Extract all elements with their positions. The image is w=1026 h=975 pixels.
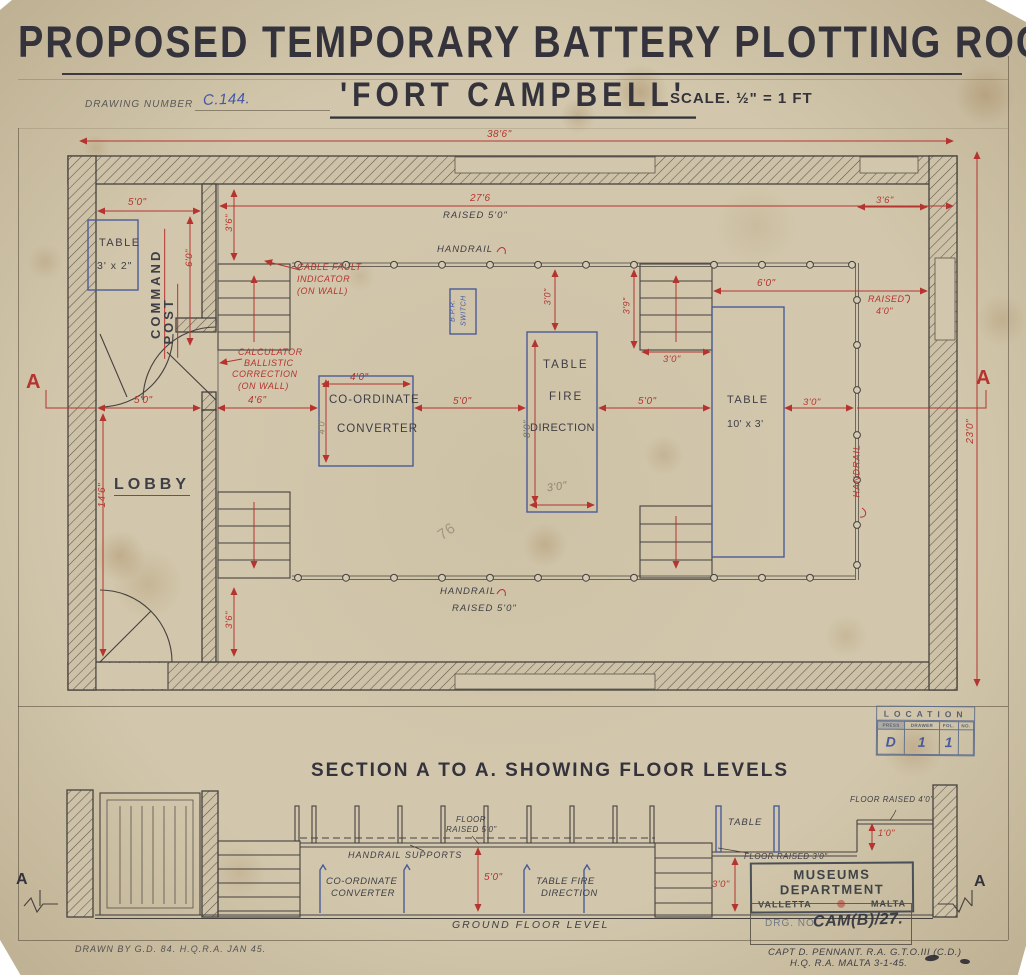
fire-table-label-2: FIRE bbox=[549, 391, 583, 403]
location-stamp-table: PRESS DRAWER FOL. NO. D 1 1 bbox=[877, 721, 974, 756]
dim-4-6-lobby: 4'6" bbox=[248, 396, 267, 407]
section-title: SECTION A TO A. SHOWING FLOOR LEVELS bbox=[285, 761, 815, 781]
section-dim-1-0: 1'0" bbox=[878, 829, 895, 838]
section-dim-3-0: 3'0" bbox=[712, 880, 730, 890]
converter-label-1: CO-ORDINATE bbox=[329, 394, 420, 406]
cp-table-label-1: TABLE bbox=[99, 238, 141, 250]
handrail-bottom-label: HANDRAIL bbox=[440, 587, 496, 597]
handrail-supports-label: HANDRAIL SUPPORTS bbox=[348, 851, 462, 860]
handrail-top-label: HANDRAIL bbox=[437, 245, 493, 255]
dim-6-0-right: 6'0" bbox=[757, 279, 776, 290]
floor-raised-5-0-label-1: FLOOR bbox=[456, 816, 486, 824]
section-marker-a-right: A bbox=[976, 368, 991, 389]
dim-5-0-a: 5'0" bbox=[453, 397, 472, 408]
location-val-fol: 1 bbox=[939, 730, 958, 755]
lobby-label: LOBBY bbox=[114, 477, 190, 496]
section-marker-a-left: A bbox=[26, 372, 41, 393]
dim-5-0-lobby: 5'0" bbox=[134, 396, 153, 407]
drg-number-label: DRG. NO' bbox=[765, 919, 818, 930]
dim-3-6-right: 3'6" bbox=[876, 196, 894, 206]
calculator-line-1: CALCULATOR bbox=[238, 348, 303, 357]
dim-14-6: 14'6" bbox=[98, 468, 109, 522]
section-fire-label-2: DIRECTION bbox=[541, 889, 598, 899]
dim-3-6-left: 3'6" bbox=[225, 203, 235, 243]
bpr-switch-label-1: B.P.R. bbox=[449, 281, 456, 341]
dim-3-6-bottom: 3'6" bbox=[225, 600, 235, 640]
calculator-line-3: CORRECTION bbox=[232, 370, 298, 379]
fire-table-label-1: TABLE bbox=[543, 359, 589, 371]
floor-raised-5-0-label-2: RAISED 5'0" bbox=[446, 826, 497, 834]
raised-5-0-bottom-label: RAISED 5'0" bbox=[452, 604, 517, 614]
section-a-marker-right: A bbox=[974, 874, 986, 891]
location-col-no: NO. bbox=[958, 722, 973, 730]
location-col-press: PRESS bbox=[878, 721, 905, 729]
dim-8-0-fire: 8'0" bbox=[523, 409, 533, 449]
dim-27-6: 27'6 bbox=[470, 194, 491, 205]
drawn-by-note: DRAWN BY G.D. 84. H.Q.R.A. JAN 45. bbox=[75, 945, 266, 954]
cable-fault-line-1: CABLE FAULT bbox=[297, 263, 362, 272]
location-val-no bbox=[958, 730, 973, 755]
bpr-switch-label-2: SWITCH bbox=[460, 281, 467, 341]
ground-floor-label: GROUND FLOOR LEVEL bbox=[452, 920, 609, 931]
raised-5-0-top-label: RAISED 5'0" bbox=[443, 211, 508, 221]
handrail-right-label: HANDRAIL bbox=[852, 426, 861, 516]
dim-3-0-fire-top: 3'0" bbox=[543, 277, 552, 317]
dim-5-0-b: 5'0" bbox=[638, 397, 657, 408]
location-stamp-title: LOCATION bbox=[877, 707, 974, 722]
section-converter-label-2: CONVERTER bbox=[331, 889, 395, 899]
fire-table-label-3: DIRECTION bbox=[530, 423, 595, 435]
dim-6-0-command: 6'0" bbox=[185, 236, 195, 280]
dim-3-9-stairs: 3'9" bbox=[622, 286, 631, 326]
cable-fault-line-3: (ON WALL) bbox=[297, 287, 348, 296]
dim-3-0-table: 3'0" bbox=[803, 398, 821, 408]
section-converter-label-1: CO-ORDINATE bbox=[326, 877, 397, 887]
dim-4-0-converter-v: 4'0" bbox=[317, 406, 326, 446]
cable-fault-line-2: INDICATOR bbox=[297, 275, 350, 284]
location-col-drawer: DRAWER bbox=[905, 721, 940, 729]
section-dim-5-0: 5'0" bbox=[484, 873, 503, 884]
drawing-sheet: PROPOSED TEMPORARY BATTERY PLOTTING ROOM… bbox=[0, 0, 1026, 975]
dim-5-0-command: 5'0" bbox=[128, 198, 147, 209]
location-col-fol: FOL. bbox=[939, 722, 958, 730]
raised-4-0-label-1: RAISED bbox=[868, 295, 905, 304]
dim-3-0-stairs: 3'0" bbox=[663, 355, 681, 365]
dim-23-0: 23'0" bbox=[966, 404, 977, 458]
section-a-marker-left: A bbox=[16, 872, 28, 889]
location-stamp: LOCATION PRESS DRAWER FOL. NO. D 1 1 bbox=[876, 706, 975, 757]
drg-number-box: DRG. NO' CAM(B)/27. bbox=[750, 903, 912, 945]
calculator-line-4: (ON WALL) bbox=[238, 382, 289, 391]
dim-38-6: 38'6" bbox=[487, 130, 512, 141]
section-fire-label-1: TABLE FIRE bbox=[536, 877, 595, 887]
signature-line-2: H.Q. R.A. MALTA 3-1-45. bbox=[790, 959, 907, 969]
location-val-press: D bbox=[877, 729, 904, 754]
calculator-line-2: BALLISTIC bbox=[244, 359, 294, 368]
right-table-label-2: 10' x 3' bbox=[727, 419, 764, 430]
museums-stamp-title: MUSEUMS DEPARTMENT bbox=[758, 866, 906, 897]
dim-4-0-converter: 4'0" bbox=[350, 373, 369, 384]
drg-number-value: CAM(B)/27. bbox=[813, 911, 904, 931]
section-table-label: TABLE bbox=[728, 818, 762, 828]
right-table-label-1: TABLE bbox=[727, 395, 769, 407]
floor-raised-4-0-label: FLOOR RAISED 4'0" bbox=[850, 796, 934, 804]
command-post-label-2: POST bbox=[162, 284, 178, 358]
floor-raised-3-0-label: FLOOR RAISED 3'0" bbox=[744, 853, 828, 861]
location-val-drawer: 1 bbox=[904, 729, 939, 754]
cp-table-label-2: 3' x 2" bbox=[97, 261, 133, 272]
raised-4-0-label-2: 4'0" bbox=[876, 307, 893, 316]
converter-label-2: CONVERTER bbox=[337, 423, 418, 435]
